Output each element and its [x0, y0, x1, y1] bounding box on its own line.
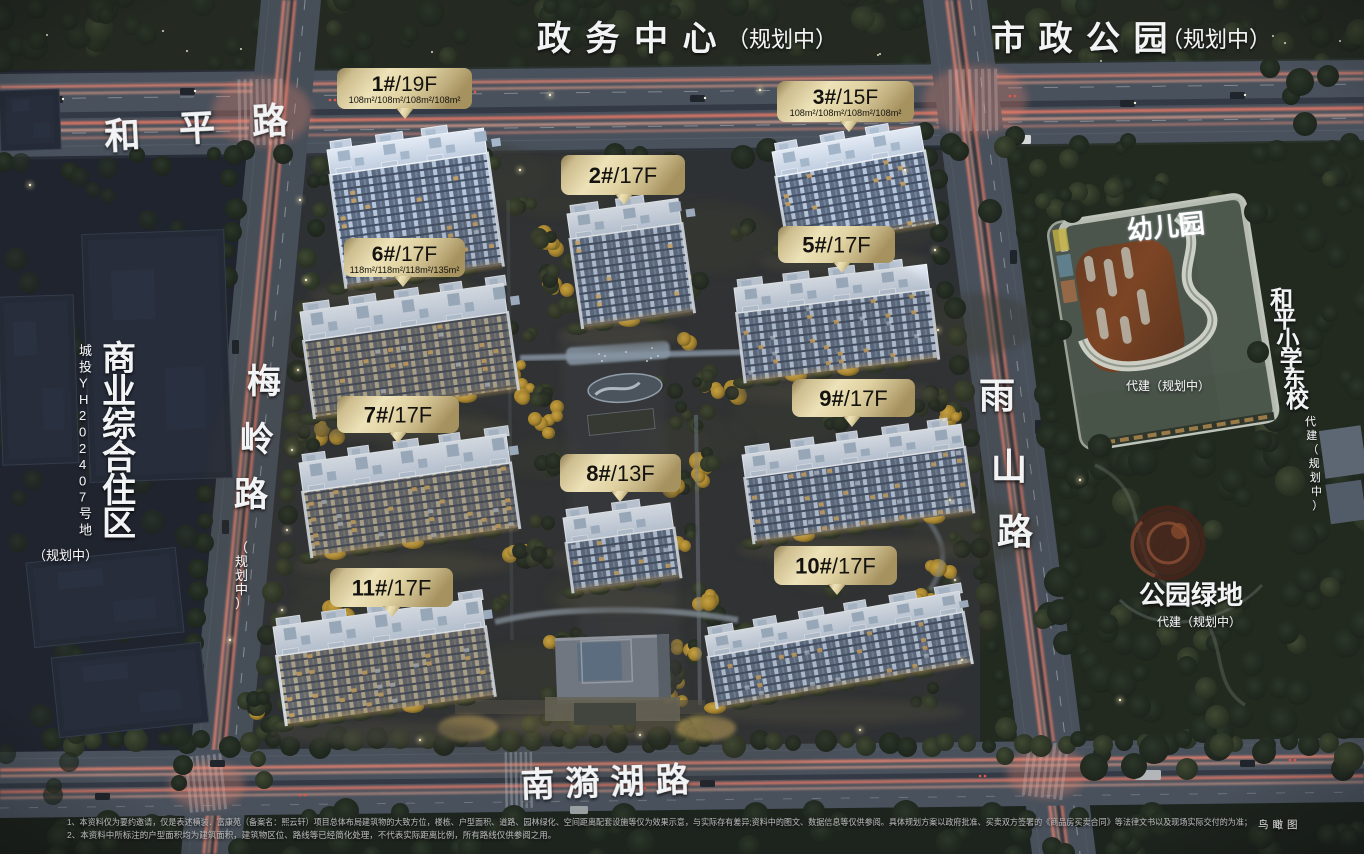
svg-text:8#/13F: 8#/13F [586, 461, 655, 486]
svg-text:山: 山 [991, 446, 1027, 487]
svg-text:Y: Y [79, 376, 88, 391]
svg-text:10#/17F: 10#/17F [795, 554, 876, 579]
svg-text:建: 建 [1306, 428, 1317, 442]
svg-text:（: （ [1307, 443, 1318, 456]
svg-text:雨: 雨 [979, 375, 1015, 416]
svg-text:7: 7 [79, 490, 86, 505]
svg-text:代: 代 [1305, 415, 1316, 428]
svg-text:2#/17F: 2#/17F [589, 163, 658, 188]
svg-text:中: 中 [235, 582, 248, 597]
svg-text:代建（规划中）: 代建（规划中） [1157, 614, 1241, 629]
svg-text:1、本资料仅为要约邀请，仅是表述横装．富康苑（备案名：熙云轩: 1、本资料仅为要约邀请，仅是表述横装．富康苑（备案名：熙云轩）项目总体布局建筑物… [67, 817, 1252, 827]
svg-text:（规划中）: （规划中） [1161, 27, 1271, 52]
svg-text:岭: 岭 [240, 421, 274, 459]
svg-text:0: 0 [79, 473, 86, 488]
svg-text:规: 规 [1309, 456, 1320, 470]
svg-text:5#/17F: 5#/17F [802, 233, 871, 258]
svg-text:108m²/108m²/108m²/108m²: 108m²/108m²/108m²/108m² [790, 108, 902, 118]
svg-text:3#/15F: 3#/15F [813, 86, 878, 109]
svg-text:划: 划 [235, 568, 248, 583]
svg-text:2、本资料中所标注的户型面积均为建筑面积，建筑物区位、路线等: 2、本资料中所标注的户型面积均为建筑面积，建筑物区位、路线等已经简化处理，不代表… [67, 830, 556, 840]
svg-text:校: 校 [1286, 386, 1310, 412]
svg-text:地: 地 [79, 522, 92, 537]
svg-text:路: 路 [997, 511, 1034, 552]
svg-text:6#/17F: 6#/17F [372, 243, 437, 266]
svg-text:4: 4 [79, 457, 86, 472]
svg-text:9#/17F: 9#/17F [819, 386, 888, 411]
svg-text:中: 中 [1311, 485, 1322, 498]
svg-text:0: 0 [79, 425, 86, 440]
svg-text:区: 区 [102, 505, 136, 543]
svg-text:2: 2 [79, 441, 86, 456]
svg-text:平: 平 [178, 106, 216, 149]
svg-text:代建（规划中）: 代建（规划中） [1126, 378, 1210, 393]
svg-text:南漪湖路: 南漪湖路 [520, 761, 701, 805]
svg-text:H: H [79, 392, 88, 407]
svg-text:（: （ [235, 540, 248, 555]
svg-text:规: 规 [235, 554, 248, 569]
svg-text:（规划中）: （规划中） [727, 27, 837, 52]
svg-text:和: 和 [103, 114, 141, 157]
svg-text:号: 号 [79, 506, 92, 521]
svg-text:城: 城 [79, 343, 92, 358]
svg-text:梅: 梅 [247, 363, 281, 401]
svg-text:公园绿地: 公园绿地 [1139, 580, 1243, 610]
svg-text:2: 2 [79, 408, 86, 423]
svg-text:鸟瞰图: 鸟瞰图 [1258, 818, 1302, 831]
svg-text:划: 划 [1310, 471, 1321, 484]
svg-text:路: 路 [251, 99, 290, 142]
svg-text:）: ） [1312, 499, 1323, 512]
svg-text:（规划中）: （规划中） [33, 548, 98, 563]
svg-text:1#/19F: 1#/19F [372, 73, 437, 96]
svg-text:市政公园: 市政公园 [991, 19, 1181, 58]
svg-text:11#/17F: 11#/17F [352, 576, 432, 601]
svg-text:投: 投 [79, 359, 92, 374]
svg-text:路: 路 [234, 476, 269, 514]
svg-text:7#/17F: 7#/17F [364, 403, 433, 428]
svg-text:政务中心: 政务中心 [537, 20, 731, 58]
svg-text:108m²/108m²/108m²/108m²: 108m²/108m²/108m²/108m² [349, 95, 461, 105]
svg-text:）: ） [235, 596, 248, 611]
svg-text:118m²/118m²/118m²/135m²: 118m²/118m²/118m²/135m² [350, 265, 460, 275]
